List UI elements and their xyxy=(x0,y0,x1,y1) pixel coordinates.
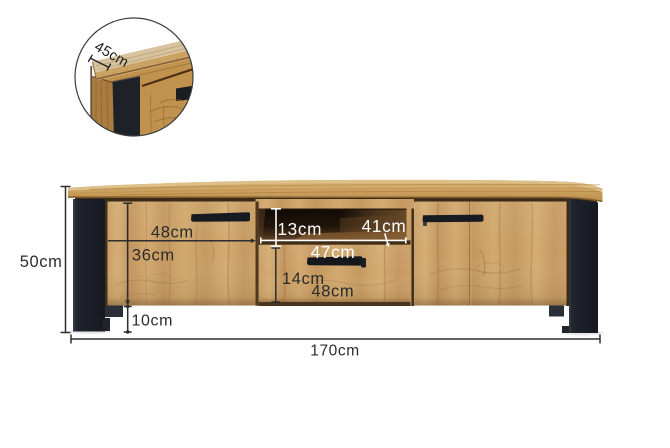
svg-text:48cm: 48cm xyxy=(311,283,354,301)
svg-text:13cm: 13cm xyxy=(277,219,322,239)
svg-text:50cm: 50cm xyxy=(20,253,63,271)
svg-text:36cm: 36cm xyxy=(132,246,175,264)
svg-text:41cm: 41cm xyxy=(362,216,407,236)
svg-text:170cm: 170cm xyxy=(310,342,360,359)
svg-text:48cm: 48cm xyxy=(151,223,194,241)
svg-text:10cm: 10cm xyxy=(132,313,174,330)
svg-text:47cm: 47cm xyxy=(311,242,356,262)
